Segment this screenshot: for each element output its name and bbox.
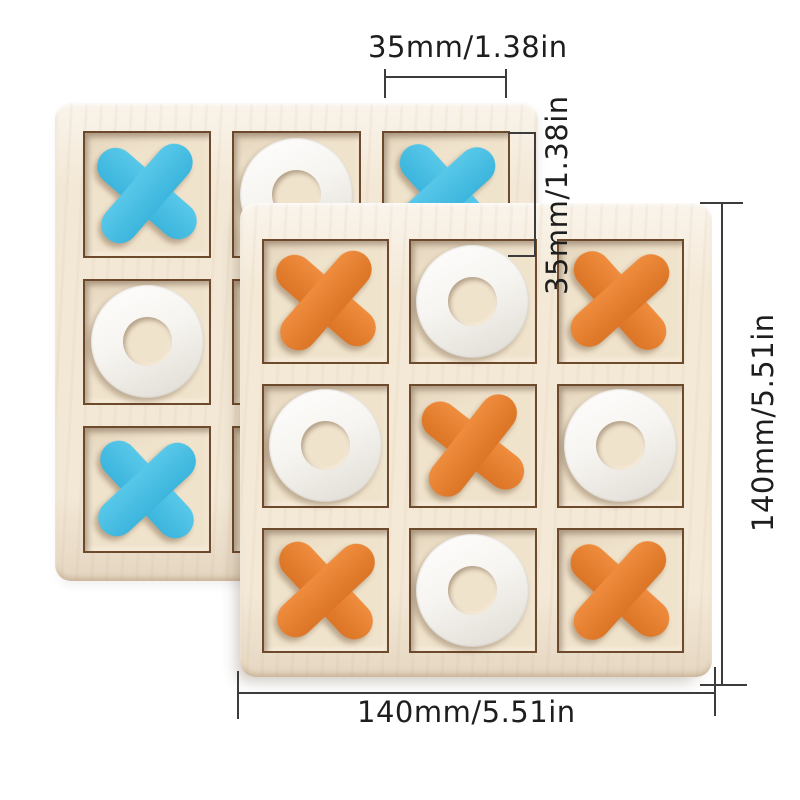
product-image: 35mm/1.38in 35mm/1.38in 140mm/5.51in 140… <box>0 0 800 800</box>
cell-front-r1c0 <box>262 384 389 509</box>
dimension-line <box>385 76 507 78</box>
o-hole <box>301 421 350 470</box>
x-piece <box>408 381 537 510</box>
cell-front-r2c2 <box>557 528 684 653</box>
x-piece <box>559 530 681 652</box>
x-piece <box>264 239 388 363</box>
dimension-tick <box>508 255 536 257</box>
cell-front-r0c2 <box>557 239 684 364</box>
cell-back-r1c0 <box>83 279 211 406</box>
cell-front-r2c1 <box>409 528 536 653</box>
x-piece <box>85 132 209 256</box>
o-hole <box>448 277 497 326</box>
x-piece <box>559 240 681 362</box>
o-piece <box>564 389 677 502</box>
o-hole <box>596 421 645 470</box>
cell-back-r2c0 <box>83 426 211 553</box>
o-piece <box>269 389 382 502</box>
x-piece <box>266 531 386 651</box>
o-hole <box>123 317 172 366</box>
cell-front-r0c1 <box>409 239 536 364</box>
dimension-line <box>534 133 536 257</box>
dimension-tick <box>505 69 507 98</box>
cell-front-r1c1 <box>409 384 536 509</box>
board-width-label: 140mm/5.51in <box>357 697 557 729</box>
o-piece <box>416 245 529 358</box>
board-height-label: 140mm/5.51in <box>748 360 780 532</box>
x-piece <box>87 430 207 550</box>
o-piece <box>91 285 204 398</box>
cell-back-r0c0 <box>83 131 211 258</box>
dimension-tick <box>237 671 239 719</box>
o-hole <box>448 566 497 615</box>
piece-height-label: 35mm/1.38in <box>542 130 574 295</box>
dimension-line <box>721 203 723 686</box>
piece-width-label: 35mm/1.38in <box>368 32 528 64</box>
dimension-tick <box>508 132 536 134</box>
dimension-tick <box>700 202 743 204</box>
dimension-tick <box>700 684 747 686</box>
cell-front-r2c0 <box>262 528 389 653</box>
front-game-board <box>240 203 712 677</box>
o-piece <box>416 534 529 647</box>
dimension-tick <box>714 667 716 716</box>
dimension-line <box>238 692 716 694</box>
dimension-tick <box>384 69 386 98</box>
cell-front-r1c2 <box>557 384 684 509</box>
cell-front-r0c0 <box>262 239 389 364</box>
